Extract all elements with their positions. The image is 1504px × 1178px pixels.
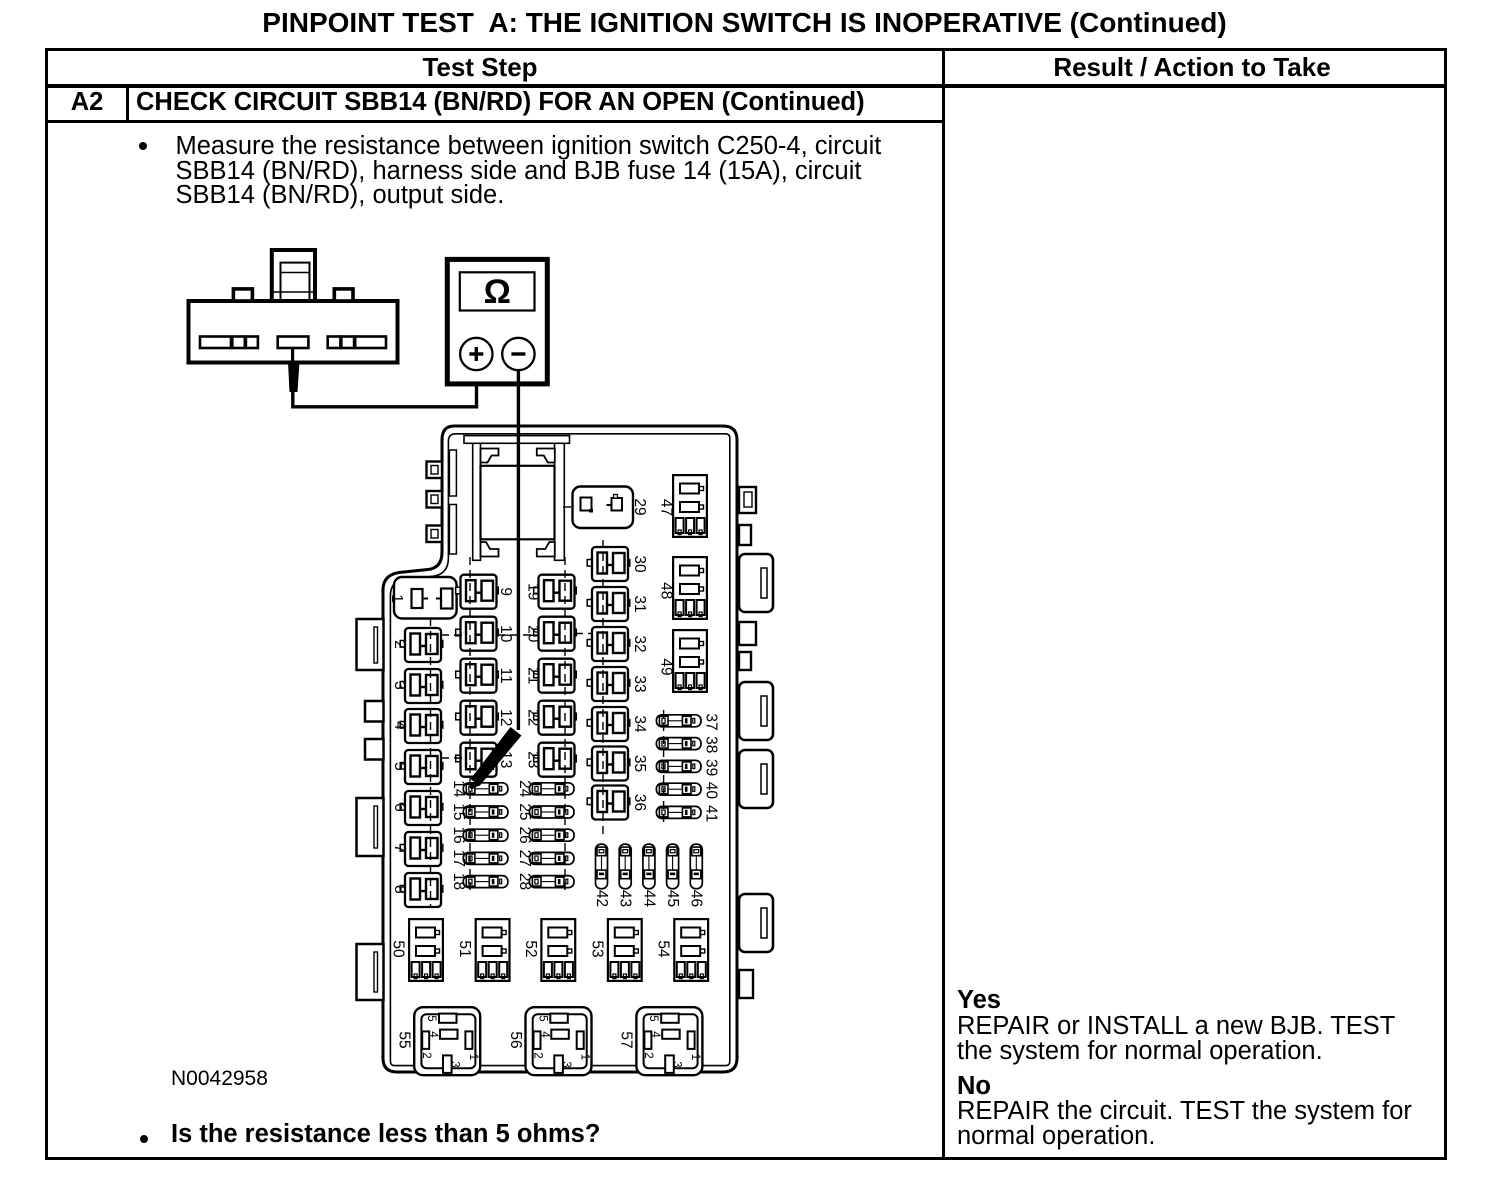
svg-text:8: 8 bbox=[391, 885, 408, 894]
svg-text:42: 42 bbox=[593, 890, 610, 907]
svg-text:5: 5 bbox=[391, 762, 408, 771]
svg-text:14: 14 bbox=[450, 780, 467, 798]
svg-text:23: 23 bbox=[525, 751, 542, 768]
svg-text:36: 36 bbox=[631, 794, 648, 811]
svg-text:6: 6 bbox=[391, 803, 408, 812]
svg-text:16: 16 bbox=[450, 826, 467, 843]
svg-text:7: 7 bbox=[391, 844, 408, 853]
svg-text:37: 37 bbox=[703, 713, 720, 730]
svg-text:17: 17 bbox=[450, 850, 467, 867]
svg-text:2: 2 bbox=[391, 640, 408, 649]
svg-text:29: 29 bbox=[631, 498, 648, 515]
svg-text:10: 10 bbox=[497, 625, 514, 643]
svg-text:48: 48 bbox=[658, 582, 675, 599]
svg-text:31: 31 bbox=[631, 595, 648, 612]
svg-text:Ω: Ω bbox=[484, 273, 511, 311]
svg-text:25: 25 bbox=[516, 803, 533, 820]
svg-text:4: 4 bbox=[391, 721, 408, 730]
svg-text:47: 47 bbox=[658, 499, 675, 516]
svg-text:1: 1 bbox=[388, 594, 405, 603]
svg-text:45: 45 bbox=[664, 890, 681, 907]
svg-text:51: 51 bbox=[456, 940, 473, 957]
svg-text:24: 24 bbox=[516, 780, 533, 798]
svg-text:44: 44 bbox=[640, 890, 657, 908]
svg-text:34: 34 bbox=[631, 715, 648, 733]
svg-text:12: 12 bbox=[497, 709, 514, 726]
svg-text:28: 28 bbox=[516, 873, 533, 890]
svg-text:43: 43 bbox=[617, 890, 634, 907]
svg-text:40: 40 bbox=[703, 782, 720, 800]
svg-text:53: 53 bbox=[588, 940, 605, 957]
svg-text:26: 26 bbox=[516, 826, 533, 843]
svg-text:22: 22 bbox=[525, 709, 542, 726]
svg-text:56: 56 bbox=[507, 1031, 524, 1048]
svg-text:32: 32 bbox=[631, 635, 648, 652]
svg-text:3: 3 bbox=[391, 681, 408, 690]
svg-text:54: 54 bbox=[655, 940, 672, 958]
svg-text:39: 39 bbox=[703, 759, 720, 776]
svg-text:38: 38 bbox=[703, 736, 720, 753]
svg-text:52: 52 bbox=[522, 940, 539, 957]
svg-text:50: 50 bbox=[390, 940, 407, 958]
svg-text:35: 35 bbox=[631, 755, 648, 772]
svg-text:41: 41 bbox=[703, 805, 720, 822]
svg-text:57: 57 bbox=[618, 1031, 635, 1048]
svg-text:15: 15 bbox=[450, 803, 467, 820]
svg-text:20: 20 bbox=[525, 625, 542, 643]
svg-text:21: 21 bbox=[525, 667, 542, 684]
svg-text:18: 18 bbox=[450, 873, 467, 890]
svg-text:11: 11 bbox=[497, 668, 514, 684]
svg-text:49: 49 bbox=[658, 658, 675, 675]
svg-text:46: 46 bbox=[688, 890, 705, 907]
svg-text:55: 55 bbox=[396, 1031, 413, 1048]
svg-text:33: 33 bbox=[631, 675, 648, 692]
svg-text:9: 9 bbox=[497, 587, 514, 596]
svg-text:30: 30 bbox=[631, 555, 648, 573]
svg-text:27: 27 bbox=[516, 850, 533, 867]
svg-text:19: 19 bbox=[525, 583, 542, 600]
